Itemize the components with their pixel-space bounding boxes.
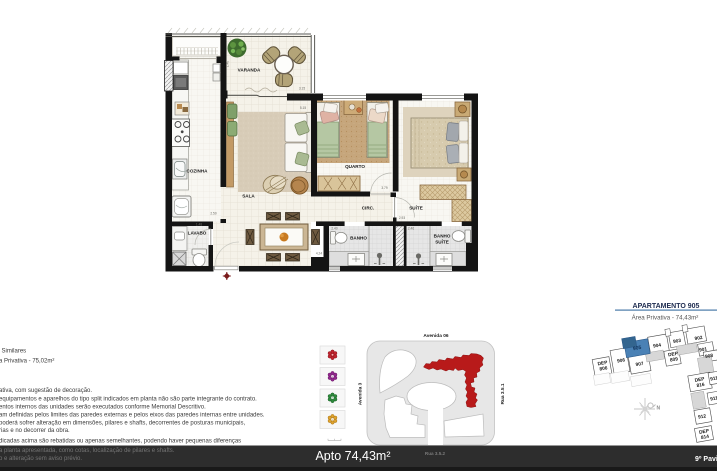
svg-text:BANHO: BANHO: [434, 234, 451, 239]
svg-text:SUÍTE: SUÍTE: [409, 204, 423, 211]
svg-text:Rua 3.5.1: Rua 3.5.1: [500, 383, 506, 404]
svg-text:3.15: 3.15: [299, 87, 305, 91]
svg-text:SUÍTE: SUÍTE: [435, 238, 449, 245]
svg-text:Avenida 3: Avenida 3: [358, 382, 364, 405]
svg-text:2.46: 2.46: [408, 227, 414, 231]
svg-text:Avenida 06: Avenida 06: [423, 333, 448, 339]
svg-text:COZINHA: COZINHA: [187, 169, 209, 174]
svg-text:am definidas pelos limites das: am definidas pelos limites das paredes e…: [0, 413, 265, 419]
svg-text:Área Privativa - 74,43m²: Área Privativa - 74,43m²: [632, 315, 699, 322]
svg-text:4.24: 4.24: [316, 252, 322, 256]
svg-text:LAVABO: LAVABO: [188, 231, 207, 236]
svg-text:dicadas acima são rebatidas ou: dicadas acima são rebatidas ou apenas se…: [0, 439, 241, 445]
svg-text:3.79: 3.79: [381, 186, 387, 190]
svg-text:2.40: 2.40: [331, 227, 337, 231]
svg-text:2.50: 2.50: [210, 212, 216, 216]
svg-text:a Privativa - 75,02m²: a Privativa - 75,02m²: [0, 359, 54, 365]
svg-text:2.93: 2.93: [399, 216, 405, 220]
svg-text:poderá sofrer alteração em dim: poderá sofrer alteração em dimensões, pi…: [0, 421, 245, 427]
svg-text:N: N: [657, 406, 661, 412]
svg-text:Apto 74,43m²: Apto 74,43m²: [315, 449, 390, 463]
svg-text:BANHO: BANHO: [350, 236, 367, 241]
svg-text:5.15: 5.15: [300, 106, 306, 110]
svg-text:APARTAMENTO 905: APARTAMENTO 905: [633, 303, 700, 310]
svg-text:1.48: 1.48: [196, 223, 202, 227]
svg-text:equipamentos e aparelhos do ti: equipamentos e aparelhos do tipo split i…: [0, 396, 257, 402]
svg-text:Rua 3.5.2: Rua 3.5.2: [425, 451, 446, 456]
svg-text:1.40: 1.40: [226, 61, 230, 67]
svg-text:SALA: SALA: [242, 194, 255, 199]
svg-text:rias e no decorrer da obra.: rias e no decorrer da obra.: [0, 428, 70, 434]
svg-text:ativa, com sugestão de decoraç: ativa, com sugestão de decoração.: [0, 388, 92, 394]
svg-text:VARANDA: VARANDA: [238, 68, 261, 73]
svg-text:CIRC.: CIRC.: [362, 206, 375, 211]
svg-text:QUARTO: QUARTO: [345, 164, 365, 169]
svg-text:9º Pavim: 9º Pavim: [695, 456, 717, 463]
svg-text:a planta apresentada, como cot: a planta apresentada, como cotas, locali…: [0, 448, 175, 454]
svg-text:entos internos das unidades se: entos internos das unidades serão execut…: [0, 404, 206, 410]
svg-text:Similares: Similares: [2, 349, 27, 355]
svg-text:o e alteração sem aviso prévio: o e alteração sem aviso prévio.: [0, 456, 82, 462]
